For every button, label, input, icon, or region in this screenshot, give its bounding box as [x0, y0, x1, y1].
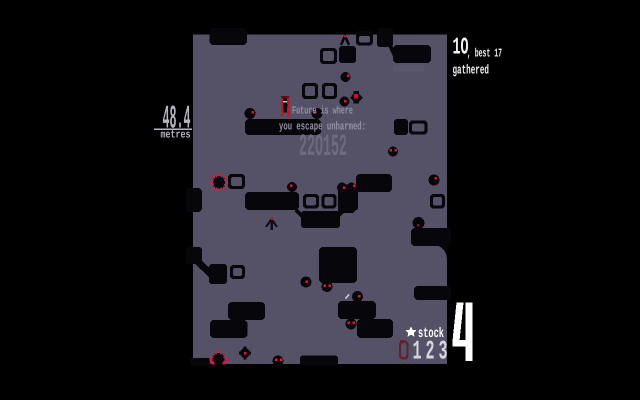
svg-text:gathered: gathered	[453, 63, 490, 78]
svg-text:3: 3	[439, 338, 448, 368]
svg-text:, best 17: , best 17	[467, 47, 502, 61]
svg-text:2: 2	[426, 338, 435, 368]
svg-text:22O152: 22O152	[299, 130, 347, 165]
svg-text:1: 1	[413, 338, 422, 368]
svg-text:metres: metres	[161, 130, 191, 142]
svg-text:Future is where: Future is where	[292, 106, 353, 118]
